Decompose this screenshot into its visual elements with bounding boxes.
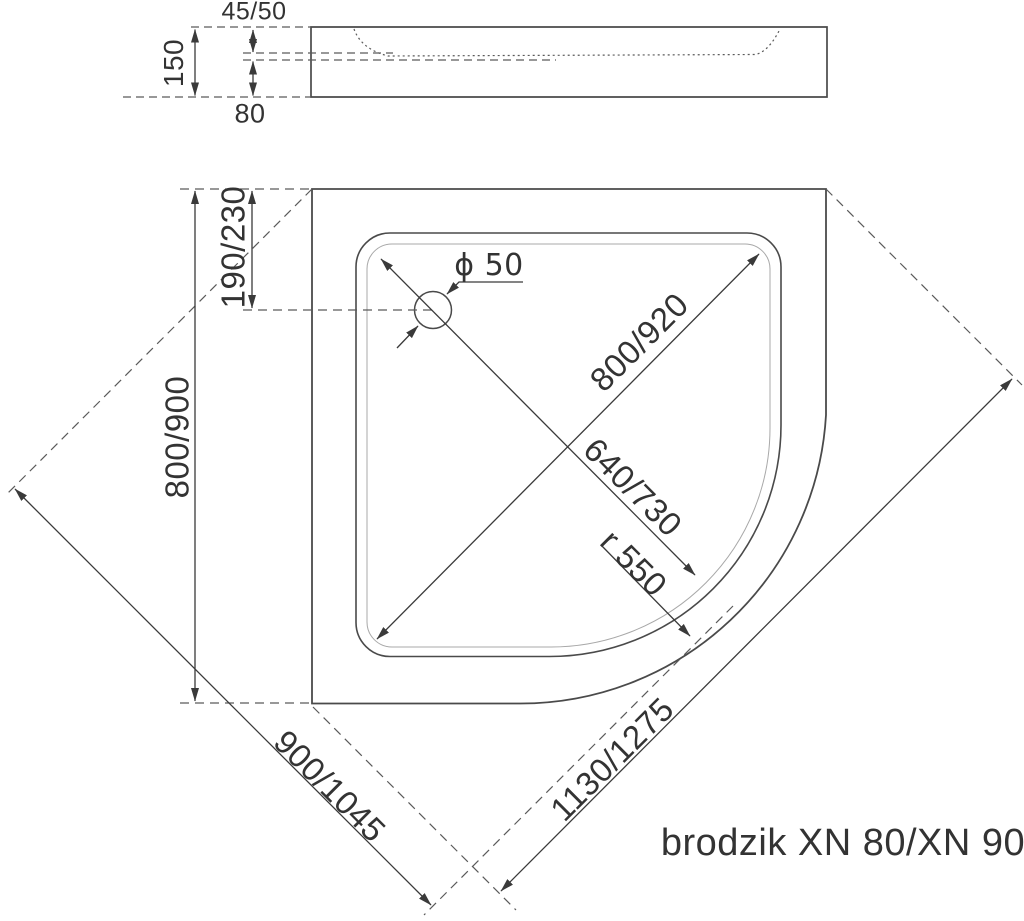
drawing-canvas — [0, 0, 1024, 921]
dim-label-rim-depth: 45/50 — [221, 0, 286, 25]
ext-line-arc-tangent — [424, 606, 733, 915]
dim-label-drain-diameter: ϕ 50 — [454, 251, 524, 281]
shower-tray-technical-drawing: 45/50 150 80 190/230 800/900 ϕ 50 800/92… — [0, 0, 1024, 921]
dim-label-total-height: 150 — [160, 39, 188, 87]
leader-line-drain-diameter — [447, 282, 523, 294]
leader-arrow-drain-opposite — [397, 326, 418, 348]
drain-circle — [415, 292, 452, 329]
dim-label-base-height: 80 — [234, 101, 265, 128]
tray-bottom-profile-dotted — [354, 29, 780, 56]
dim-label-drain-offset: 190/230 — [217, 186, 250, 309]
side-view-outline — [311, 27, 827, 97]
ext-line-top-right-corner — [826, 189, 1022, 385]
product-name: brodzik XN 80/XN 90 — [661, 824, 1024, 862]
dim-label-wall: 800/900 — [161, 376, 194, 499]
